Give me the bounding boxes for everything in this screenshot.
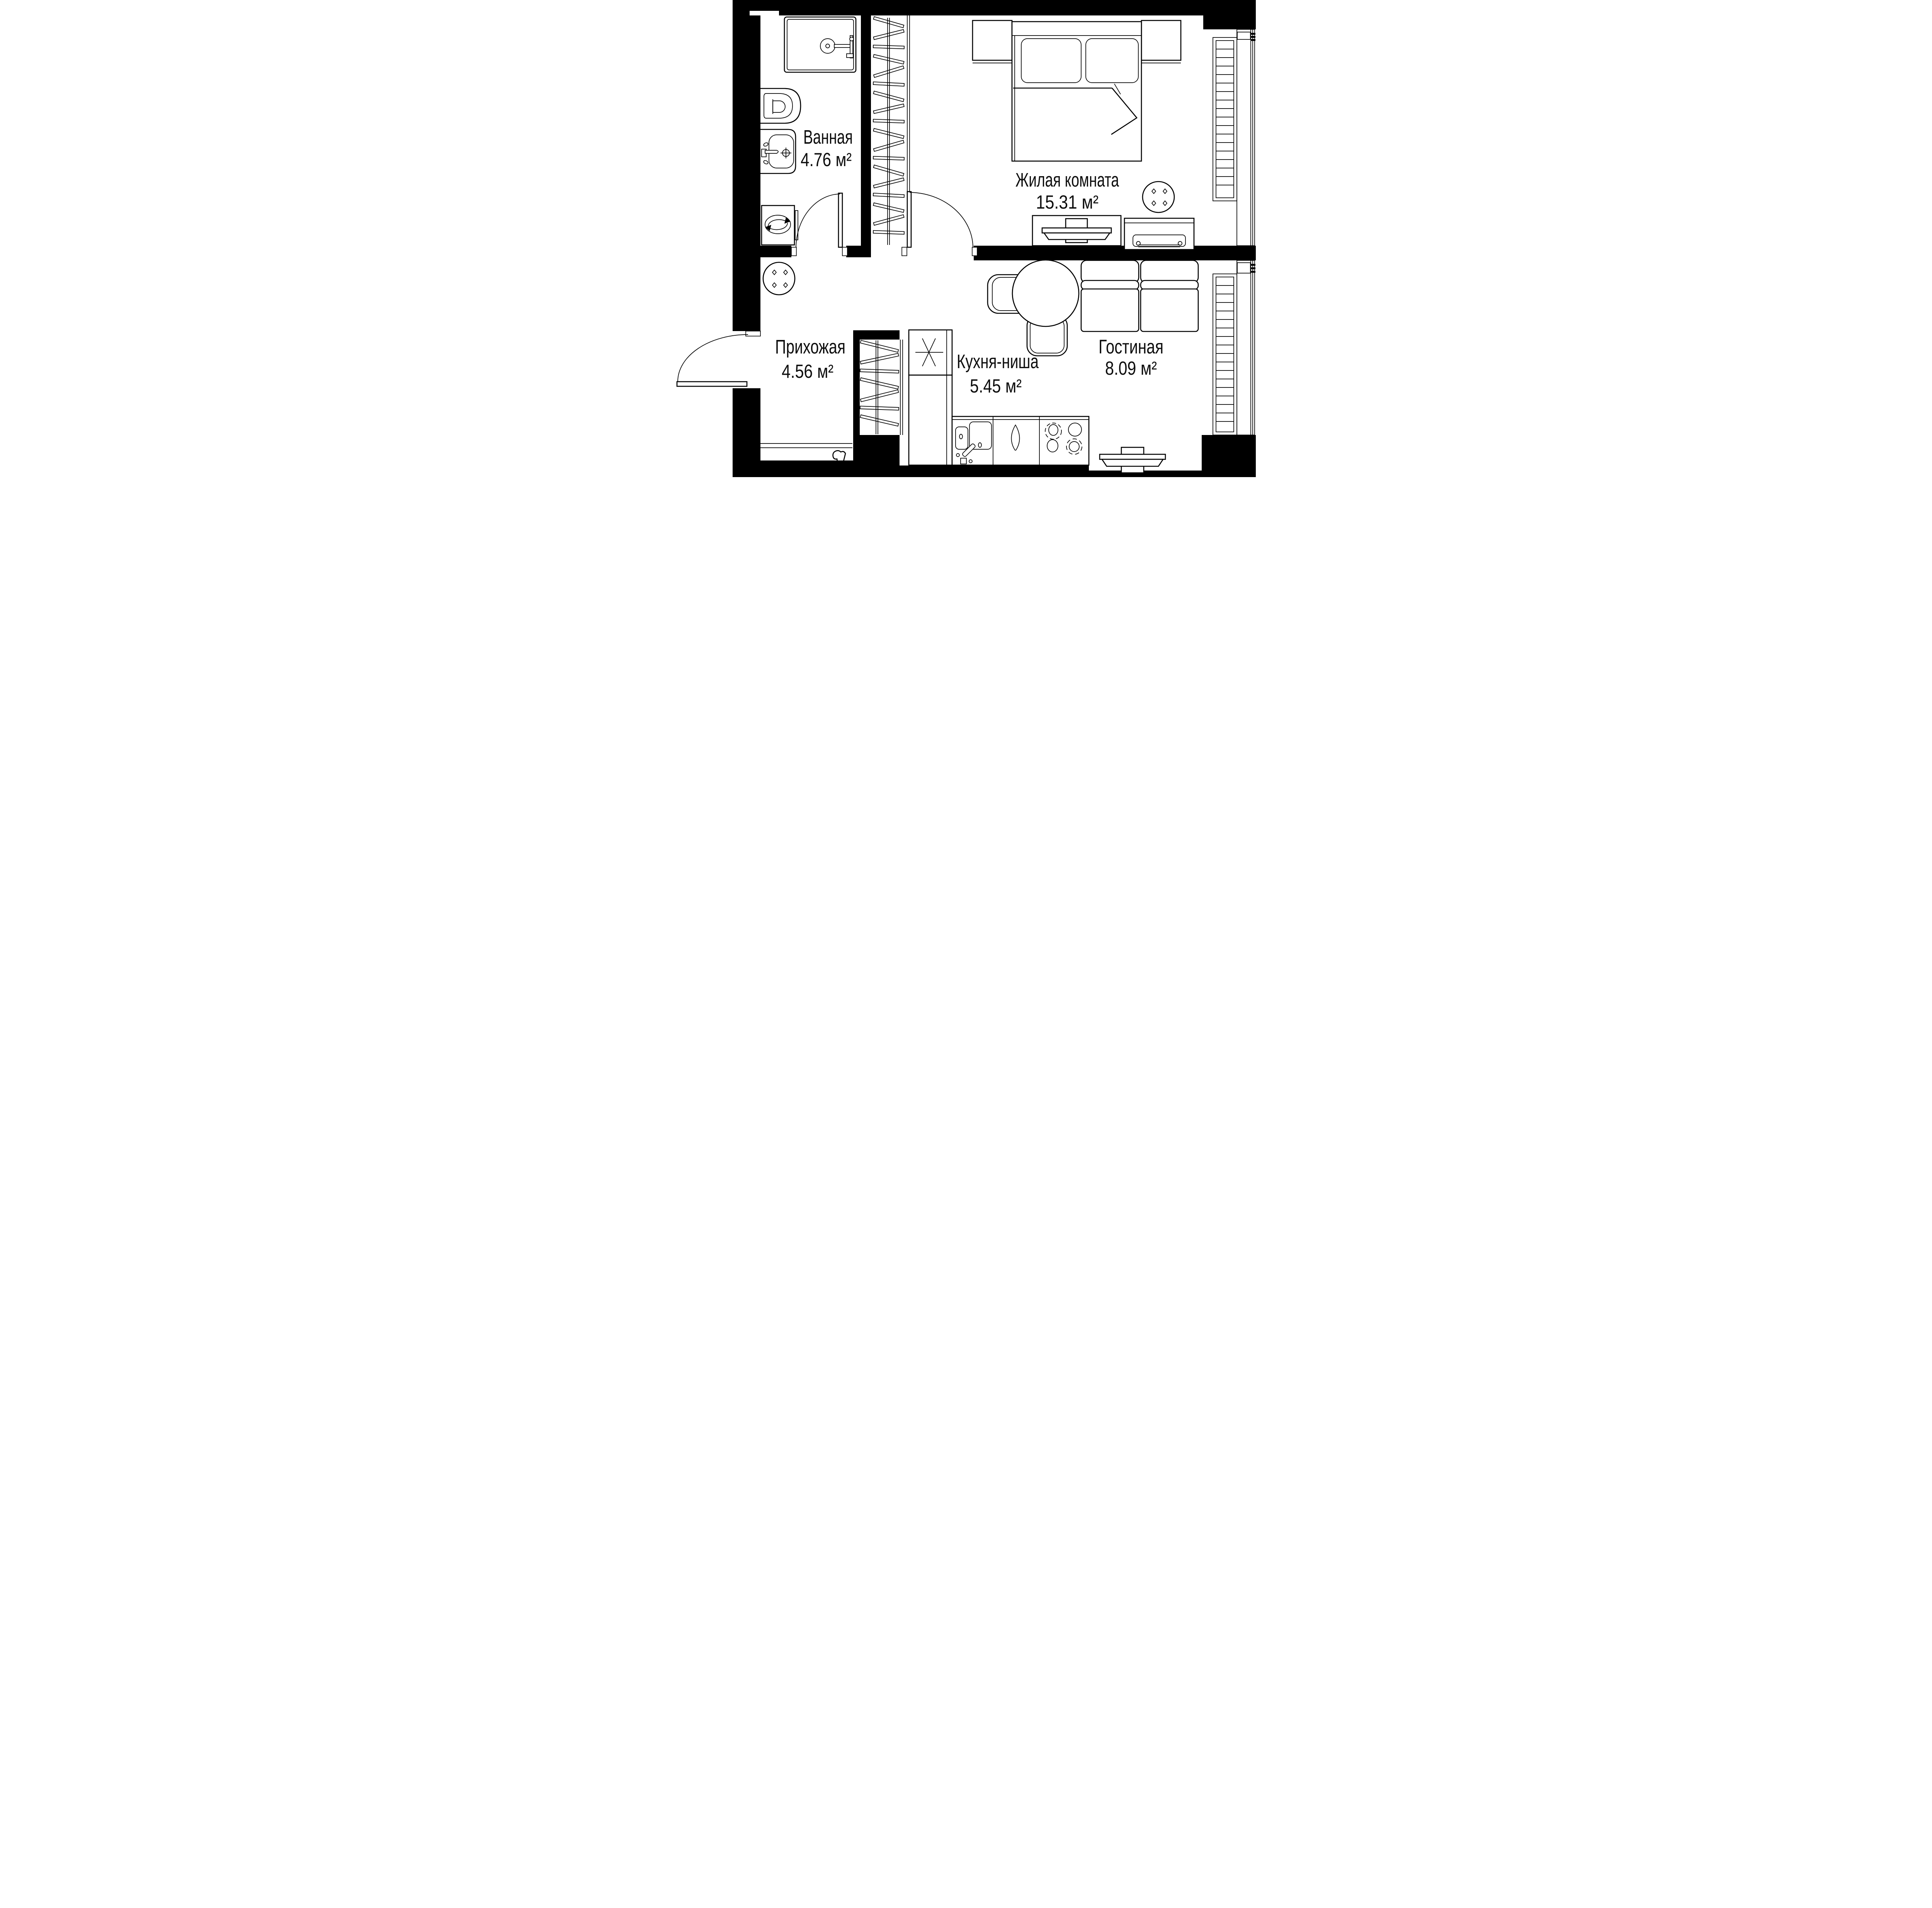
faucet-lever bbox=[765, 150, 778, 153]
window-wall-right bbox=[1237, 29, 1255, 435]
stool-top bbox=[763, 262, 795, 295]
window-cavity-2 bbox=[1237, 260, 1252, 435]
tv-screen bbox=[1042, 228, 1111, 233]
sofa-cushion-bar bbox=[1141, 280, 1198, 290]
sink-icon bbox=[760, 129, 796, 173]
shower-bracket-knob bbox=[850, 37, 854, 41]
room-label-hallway: Прихожая bbox=[775, 336, 845, 358]
wall-bottom-right-strip bbox=[1089, 471, 1205, 477]
pillow bbox=[1021, 39, 1081, 83]
room-label-bathroom: Ванная bbox=[803, 126, 853, 148]
door-leaf bbox=[677, 382, 747, 386]
shower-head-center bbox=[826, 44, 830, 48]
sill-dash bbox=[1251, 264, 1255, 266]
window-sill-box-1 bbox=[1237, 32, 1250, 39]
door-jamb bbox=[972, 247, 977, 256]
dining-table-icon bbox=[1012, 260, 1079, 326]
wall-top bbox=[733, 0, 1203, 15]
tv-screen bbox=[1100, 454, 1165, 459]
radiator-icon-1 bbox=[1213, 37, 1237, 201]
door-leaf bbox=[838, 193, 842, 247]
room-area-bedroom: 15.31 м² bbox=[1036, 192, 1099, 213]
window-cavity-1 bbox=[1237, 29, 1252, 246]
sink-drain bbox=[978, 443, 981, 447]
window-sill-box-2 bbox=[1237, 263, 1250, 273]
wall-bottom-kitchen bbox=[899, 466, 1089, 477]
sill-dash bbox=[1251, 267, 1255, 269]
sofa-seat bbox=[1141, 289, 1198, 331]
washer-drum bbox=[765, 215, 791, 234]
floor-plan-drawing: Ванная 4.76 м² Жилая комната 15.31 м² Пр… bbox=[676, 0, 1256, 477]
radiator-icon-2 bbox=[1213, 274, 1237, 435]
stool-top bbox=[1143, 182, 1174, 212]
dresser-icon-bedroom bbox=[1124, 218, 1194, 250]
faucet-screw bbox=[956, 454, 959, 457]
headboard-cabinet-right bbox=[1141, 20, 1181, 60]
wall-middle-center bbox=[846, 246, 871, 257]
faucet-screw bbox=[969, 460, 972, 463]
sill-dash bbox=[1251, 271, 1255, 273]
toilet-icon bbox=[760, 88, 801, 123]
door-jamb bbox=[902, 247, 907, 256]
sill-dash bbox=[1251, 39, 1255, 41]
sill-dash bbox=[1251, 36, 1255, 38]
radiator-inner bbox=[1216, 41, 1234, 198]
sofa-cushion-bar bbox=[1081, 280, 1139, 290]
vent-shaft-icon bbox=[909, 330, 952, 375]
sink-drain bbox=[959, 434, 963, 439]
room-area-living: 8.09 м² bbox=[1105, 358, 1157, 379]
pillow bbox=[1086, 39, 1138, 83]
faucet-base bbox=[961, 458, 966, 464]
fridge-icon bbox=[909, 375, 952, 465]
stool-icon-hallway bbox=[763, 262, 795, 295]
washing-machine-icon bbox=[762, 206, 798, 245]
fridge-body bbox=[909, 375, 952, 465]
wall-middle-left bbox=[760, 246, 791, 257]
wall-window-top bbox=[1237, 0, 1256, 29]
sofa-backrest bbox=[1141, 260, 1198, 283]
wardrobe-bottom-wall bbox=[853, 435, 900, 477]
wall-bottom-left bbox=[733, 460, 860, 477]
room-label-bedroom: Жилая комната bbox=[1015, 169, 1119, 191]
headboard-cabinet-left bbox=[973, 20, 1012, 60]
door-jamb bbox=[791, 247, 796, 256]
door-jamb bbox=[746, 331, 760, 336]
sofa-seat bbox=[1081, 289, 1139, 331]
toilet-flush bbox=[773, 101, 785, 112]
wall-middle-right bbox=[974, 246, 1256, 260]
shower-arm bbox=[834, 44, 852, 48]
kitchen-counter bbox=[952, 416, 1089, 465]
room-area-kitchen: 5.45 м² bbox=[970, 376, 1022, 397]
wall-bottom-right-corner bbox=[1202, 435, 1256, 477]
wall-left-upper bbox=[733, 15, 760, 331]
room-area-hallway: 4.56 м² bbox=[782, 361, 833, 382]
door-leaf bbox=[907, 192, 911, 247]
room-area-bathroom: 4.76 м² bbox=[801, 150, 852, 170]
shower-bracket-foot bbox=[847, 54, 853, 58]
shower-icon bbox=[784, 17, 856, 72]
floor-plan-page: Ванная 4.76 м² Жилая комната 15.31 м² Пр… bbox=[676, 0, 1256, 477]
sofa-backrest bbox=[1081, 260, 1139, 283]
wardrobe-top-cap bbox=[860, 330, 900, 340]
wall-bathroom-wardrobe bbox=[861, 15, 871, 246]
room-label-living: Гостиная bbox=[1099, 336, 1163, 358]
desk-tv-icon-bedroom bbox=[1032, 216, 1121, 246]
sill-dash bbox=[1251, 33, 1255, 35]
tv-stand-base bbox=[1044, 233, 1110, 240]
room-label-kitchen: Кухня-ниша bbox=[957, 350, 1039, 372]
radiator-inner bbox=[1216, 277, 1234, 432]
stool-icon-bedroom bbox=[1143, 182, 1174, 212]
tv-stand-base bbox=[1102, 459, 1163, 466]
door-jamb bbox=[842, 247, 847, 256]
